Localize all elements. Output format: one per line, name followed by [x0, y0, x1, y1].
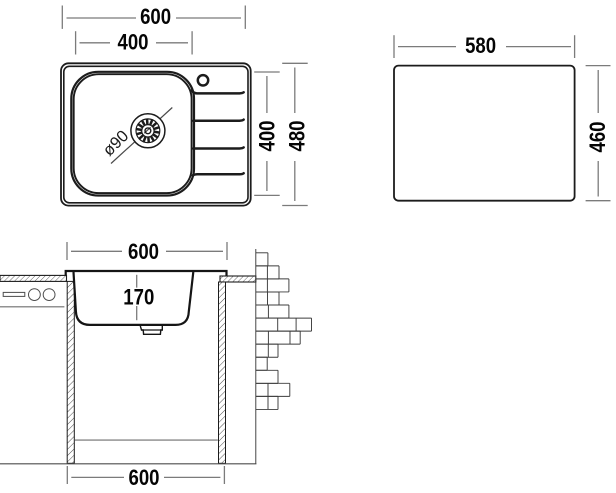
svg-text:480: 480 [284, 121, 309, 152]
svg-text:600: 600 [128, 239, 159, 264]
svg-text:170: 170 [123, 285, 154, 310]
svg-text:600: 600 [129, 465, 160, 488]
svg-text:400: 400 [118, 29, 149, 54]
svg-text:600: 600 [140, 4, 171, 29]
svg-text:580: 580 [465, 33, 496, 58]
svg-text:400: 400 [255, 121, 280, 152]
svg-text:460: 460 [585, 122, 610, 153]
